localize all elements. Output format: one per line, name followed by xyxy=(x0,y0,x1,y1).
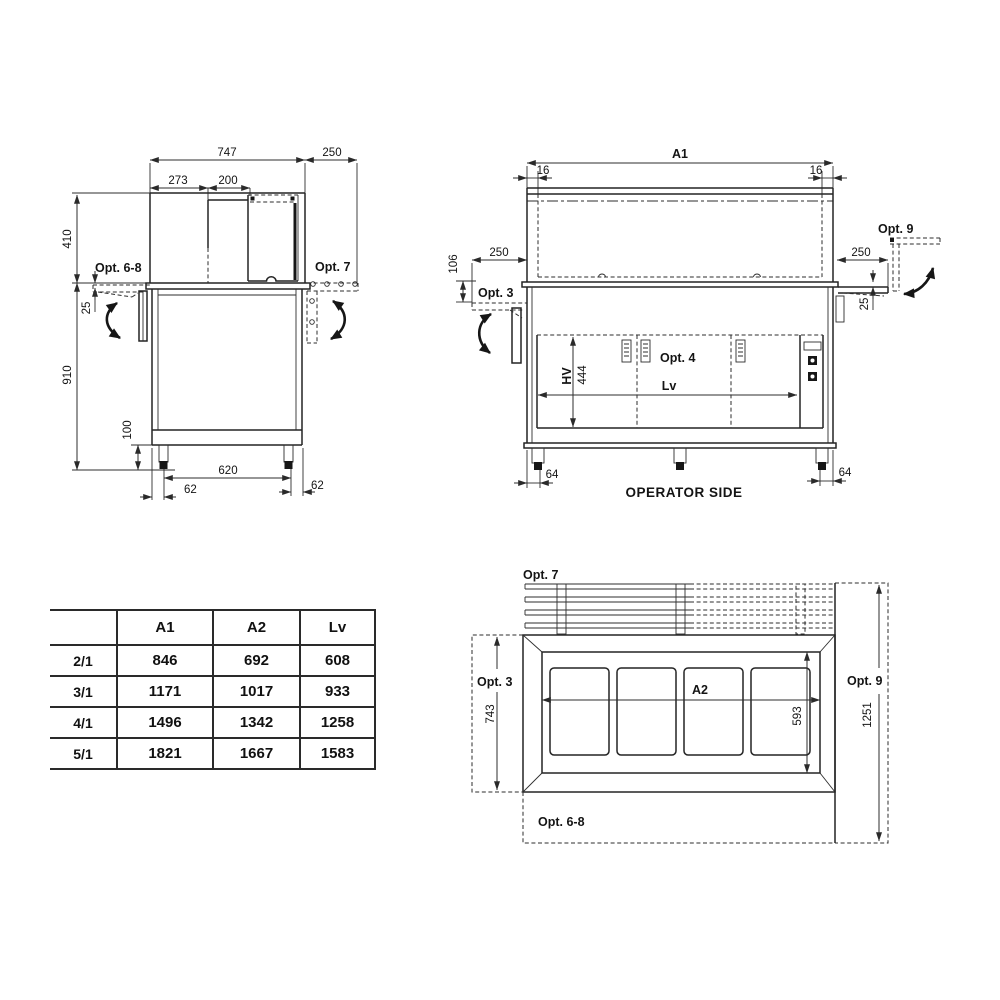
dim-62-right: 62 xyxy=(311,480,324,492)
side-view-left-shelf-opt6-8 xyxy=(93,285,150,341)
dim-25-front: 25 xyxy=(859,298,871,311)
label-opt6-8-top: Opt. 6-8 xyxy=(538,815,585,829)
table-row: 3/1 1171 1017 933 xyxy=(50,676,375,707)
row-label: 5/1 xyxy=(50,738,117,769)
row-label: 2/1 xyxy=(50,645,117,676)
dim-250-right: 250 xyxy=(851,247,870,259)
side-view-column xyxy=(248,195,298,281)
front-view-canopy xyxy=(527,188,833,282)
display-window xyxy=(804,342,821,350)
row-label: 4/1 xyxy=(50,707,117,738)
cell-Lv: 1583 xyxy=(300,738,375,769)
label-opt3-front: Opt. 3 xyxy=(478,286,513,300)
door-handle xyxy=(641,340,650,362)
dim-250-left: 250 xyxy=(489,247,508,259)
dim-HV: HV xyxy=(560,367,574,385)
top-view-rails-opt7 xyxy=(525,584,835,634)
side-view-counter-body xyxy=(146,193,310,469)
cell-A1: 1171 xyxy=(117,676,213,707)
front-view-opt3-tray xyxy=(472,303,527,363)
label-opt4: Opt. 4 xyxy=(660,351,695,365)
cell-Lv: 1258 xyxy=(300,707,375,738)
side-view-dimensions xyxy=(72,160,357,500)
col-header-Lv: Lv xyxy=(300,610,375,645)
table-corner-cell xyxy=(50,610,117,645)
control-panel xyxy=(804,342,821,381)
top-view-body xyxy=(523,635,835,792)
top-view-option-zones xyxy=(472,583,888,843)
gn-pan-1 xyxy=(550,668,609,755)
cell-A1: 1496 xyxy=(117,707,213,738)
col-header-A1: A1 xyxy=(117,610,213,645)
front-view: A1 16 16 106 250 250 25 HV 444 Lv 64 64 … xyxy=(448,147,940,500)
dim-200: 200 xyxy=(218,175,237,187)
table-header-row: A1 A2 Lv xyxy=(50,610,375,645)
table-row: 4/1 1496 1342 1258 xyxy=(50,707,375,738)
dim-620: 620 xyxy=(218,465,237,477)
door-handle xyxy=(622,340,631,362)
cell-A2: 1667 xyxy=(213,738,300,769)
dim-743: 743 xyxy=(485,704,497,723)
cell-A1: 1821 xyxy=(117,738,213,769)
gn-pan-2 xyxy=(617,668,676,755)
label-opt3-top: Opt. 3 xyxy=(477,675,512,689)
table-row: 5/1 1821 1667 1583 xyxy=(50,738,375,769)
side-view-right-shelf-opt7 xyxy=(307,282,358,343)
label-opt9-front: Opt. 9 xyxy=(878,222,913,236)
label-opt9-top: Opt. 9 xyxy=(847,674,882,688)
table-row: 2/1 846 692 608 xyxy=(50,645,375,676)
top-view: Opt. 7 Opt. 3 Opt. 9 Opt. 6-8 A2 743 593… xyxy=(472,568,888,843)
caption-operator-side: OPERATOR SIDE xyxy=(625,485,742,500)
dim-250-side: 250 xyxy=(322,147,341,159)
row-label: 3/1 xyxy=(50,676,117,707)
label-opt7-side: Opt. 7 xyxy=(315,260,350,274)
dim-A1: A1 xyxy=(672,147,688,161)
cell-Lv: 933 xyxy=(300,676,375,707)
dim-64-left: 64 xyxy=(546,469,559,481)
dim-1251: 1251 xyxy=(862,702,874,728)
dim-62-left: 62 xyxy=(184,484,197,496)
cell-A1: 846 xyxy=(117,645,213,676)
door-handle xyxy=(736,340,745,362)
dim-273: 273 xyxy=(168,175,187,187)
dim-593: 593 xyxy=(792,706,804,725)
front-view-opt9-bracket xyxy=(890,238,940,294)
cell-A2: 1017 xyxy=(213,676,300,707)
dim-16-right: 16 xyxy=(810,165,823,177)
label-opt7-top: Opt. 7 xyxy=(523,568,558,582)
dim-410: 410 xyxy=(62,229,74,248)
dim-100: 100 xyxy=(122,420,134,439)
dim-16-left: 16 xyxy=(537,165,550,177)
dim-25-side: 25 xyxy=(81,302,93,315)
gn-pan-3 xyxy=(684,668,743,755)
cell-A2: 692 xyxy=(213,645,300,676)
dim-106: 106 xyxy=(448,254,460,273)
dim-A2: A2 xyxy=(692,683,708,697)
dim-64-right: 64 xyxy=(839,467,852,479)
technical-drawing-sheet: 747 250 273 200 410 25 910 100 620 62 62… xyxy=(0,0,1000,1000)
col-header-A2: A2 xyxy=(213,610,300,645)
cell-Lv: 608 xyxy=(300,645,375,676)
label-opt6-8-side: Opt. 6-8 xyxy=(95,261,142,275)
dim-Lv: Lv xyxy=(662,379,677,393)
dim-747: 747 xyxy=(217,147,236,159)
cell-A2: 1342 xyxy=(213,707,300,738)
dimensions-table: A1 A2 Lv 2/1 846 692 608 3/1 1171 1017 9… xyxy=(50,609,376,770)
drawings-svg: 747 250 273 200 410 25 910 100 620 62 62… xyxy=(0,0,1000,1000)
side-view: 747 250 273 200 410 25 910 100 620 62 62… xyxy=(62,147,358,500)
dim-444: 444 xyxy=(577,365,589,385)
dim-910: 910 xyxy=(62,365,74,384)
